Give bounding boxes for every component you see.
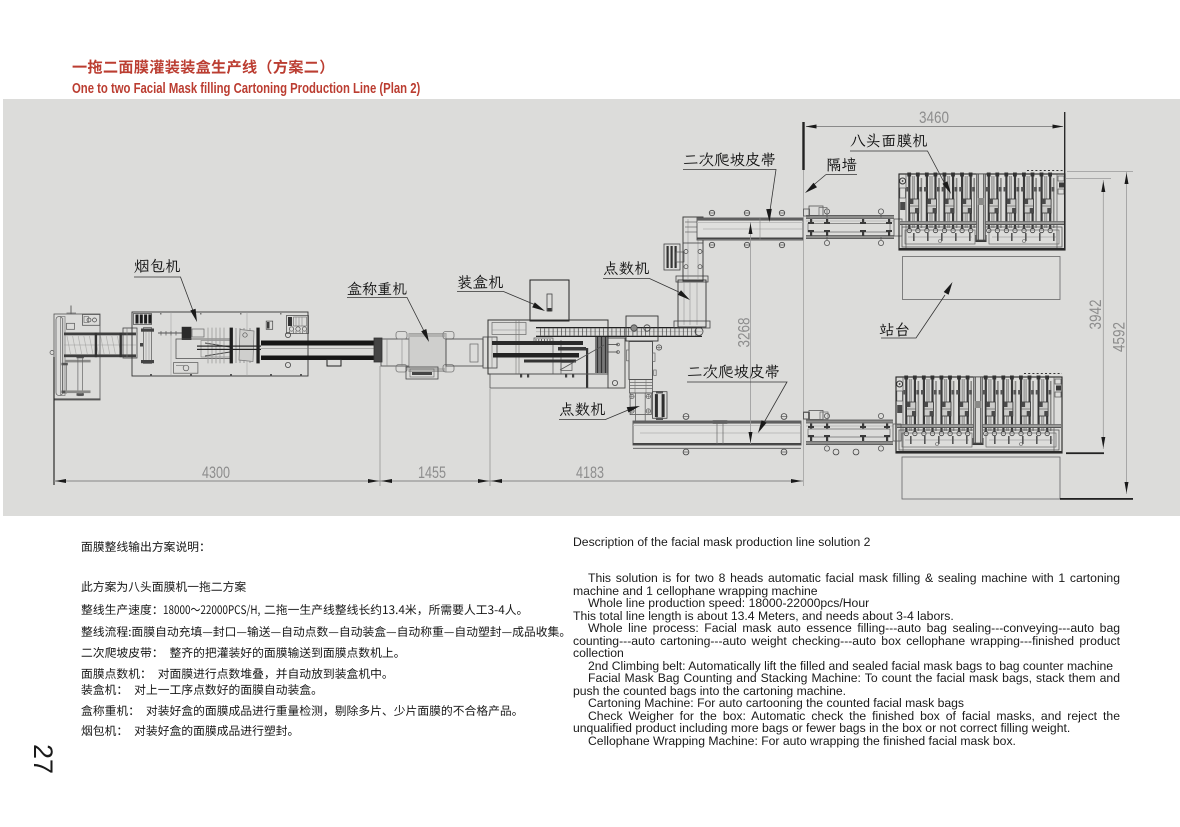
svg-text:3942: 3942: [1087, 300, 1105, 330]
svg-text:3460: 3460: [919, 109, 949, 127]
svg-text:27: 27: [28, 744, 58, 774]
svg-text:3268: 3268: [735, 318, 753, 348]
svg-text:1455: 1455: [418, 464, 446, 482]
svg-text:4592: 4592: [1111, 322, 1129, 352]
svg-text:4300: 4300: [202, 464, 230, 482]
svg-text:4183: 4183: [576, 464, 604, 482]
